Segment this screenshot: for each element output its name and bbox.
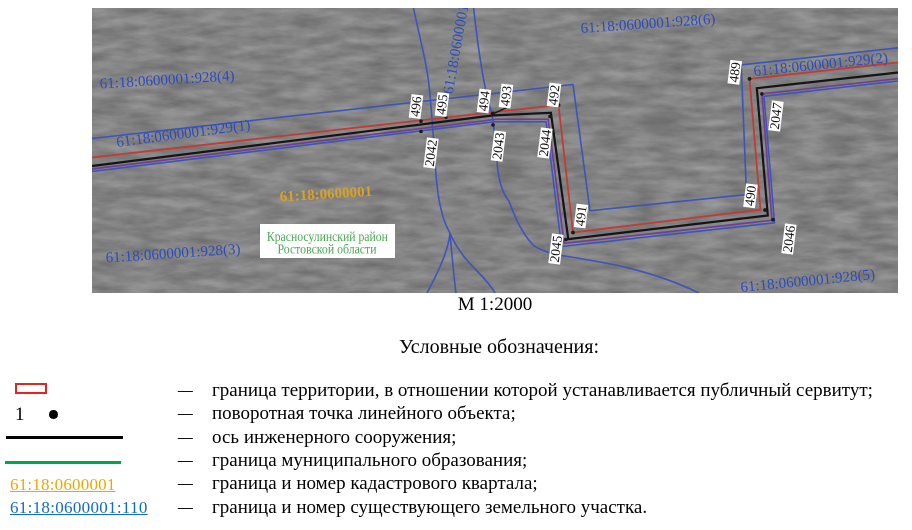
svg-text:496: 496 bbox=[407, 95, 424, 117]
svg-text:493: 493 bbox=[497, 85, 514, 107]
svg-text:494: 494 bbox=[475, 90, 492, 112]
svg-text:Ростовской области: Ростовской области bbox=[278, 242, 377, 257]
svg-text:489: 489 bbox=[726, 61, 743, 83]
svg-text:492: 492 bbox=[545, 84, 562, 106]
svg-text:490: 490 bbox=[742, 185, 759, 207]
svg-text:495: 495 bbox=[433, 93, 450, 115]
svg-text:491: 491 bbox=[572, 205, 589, 227]
